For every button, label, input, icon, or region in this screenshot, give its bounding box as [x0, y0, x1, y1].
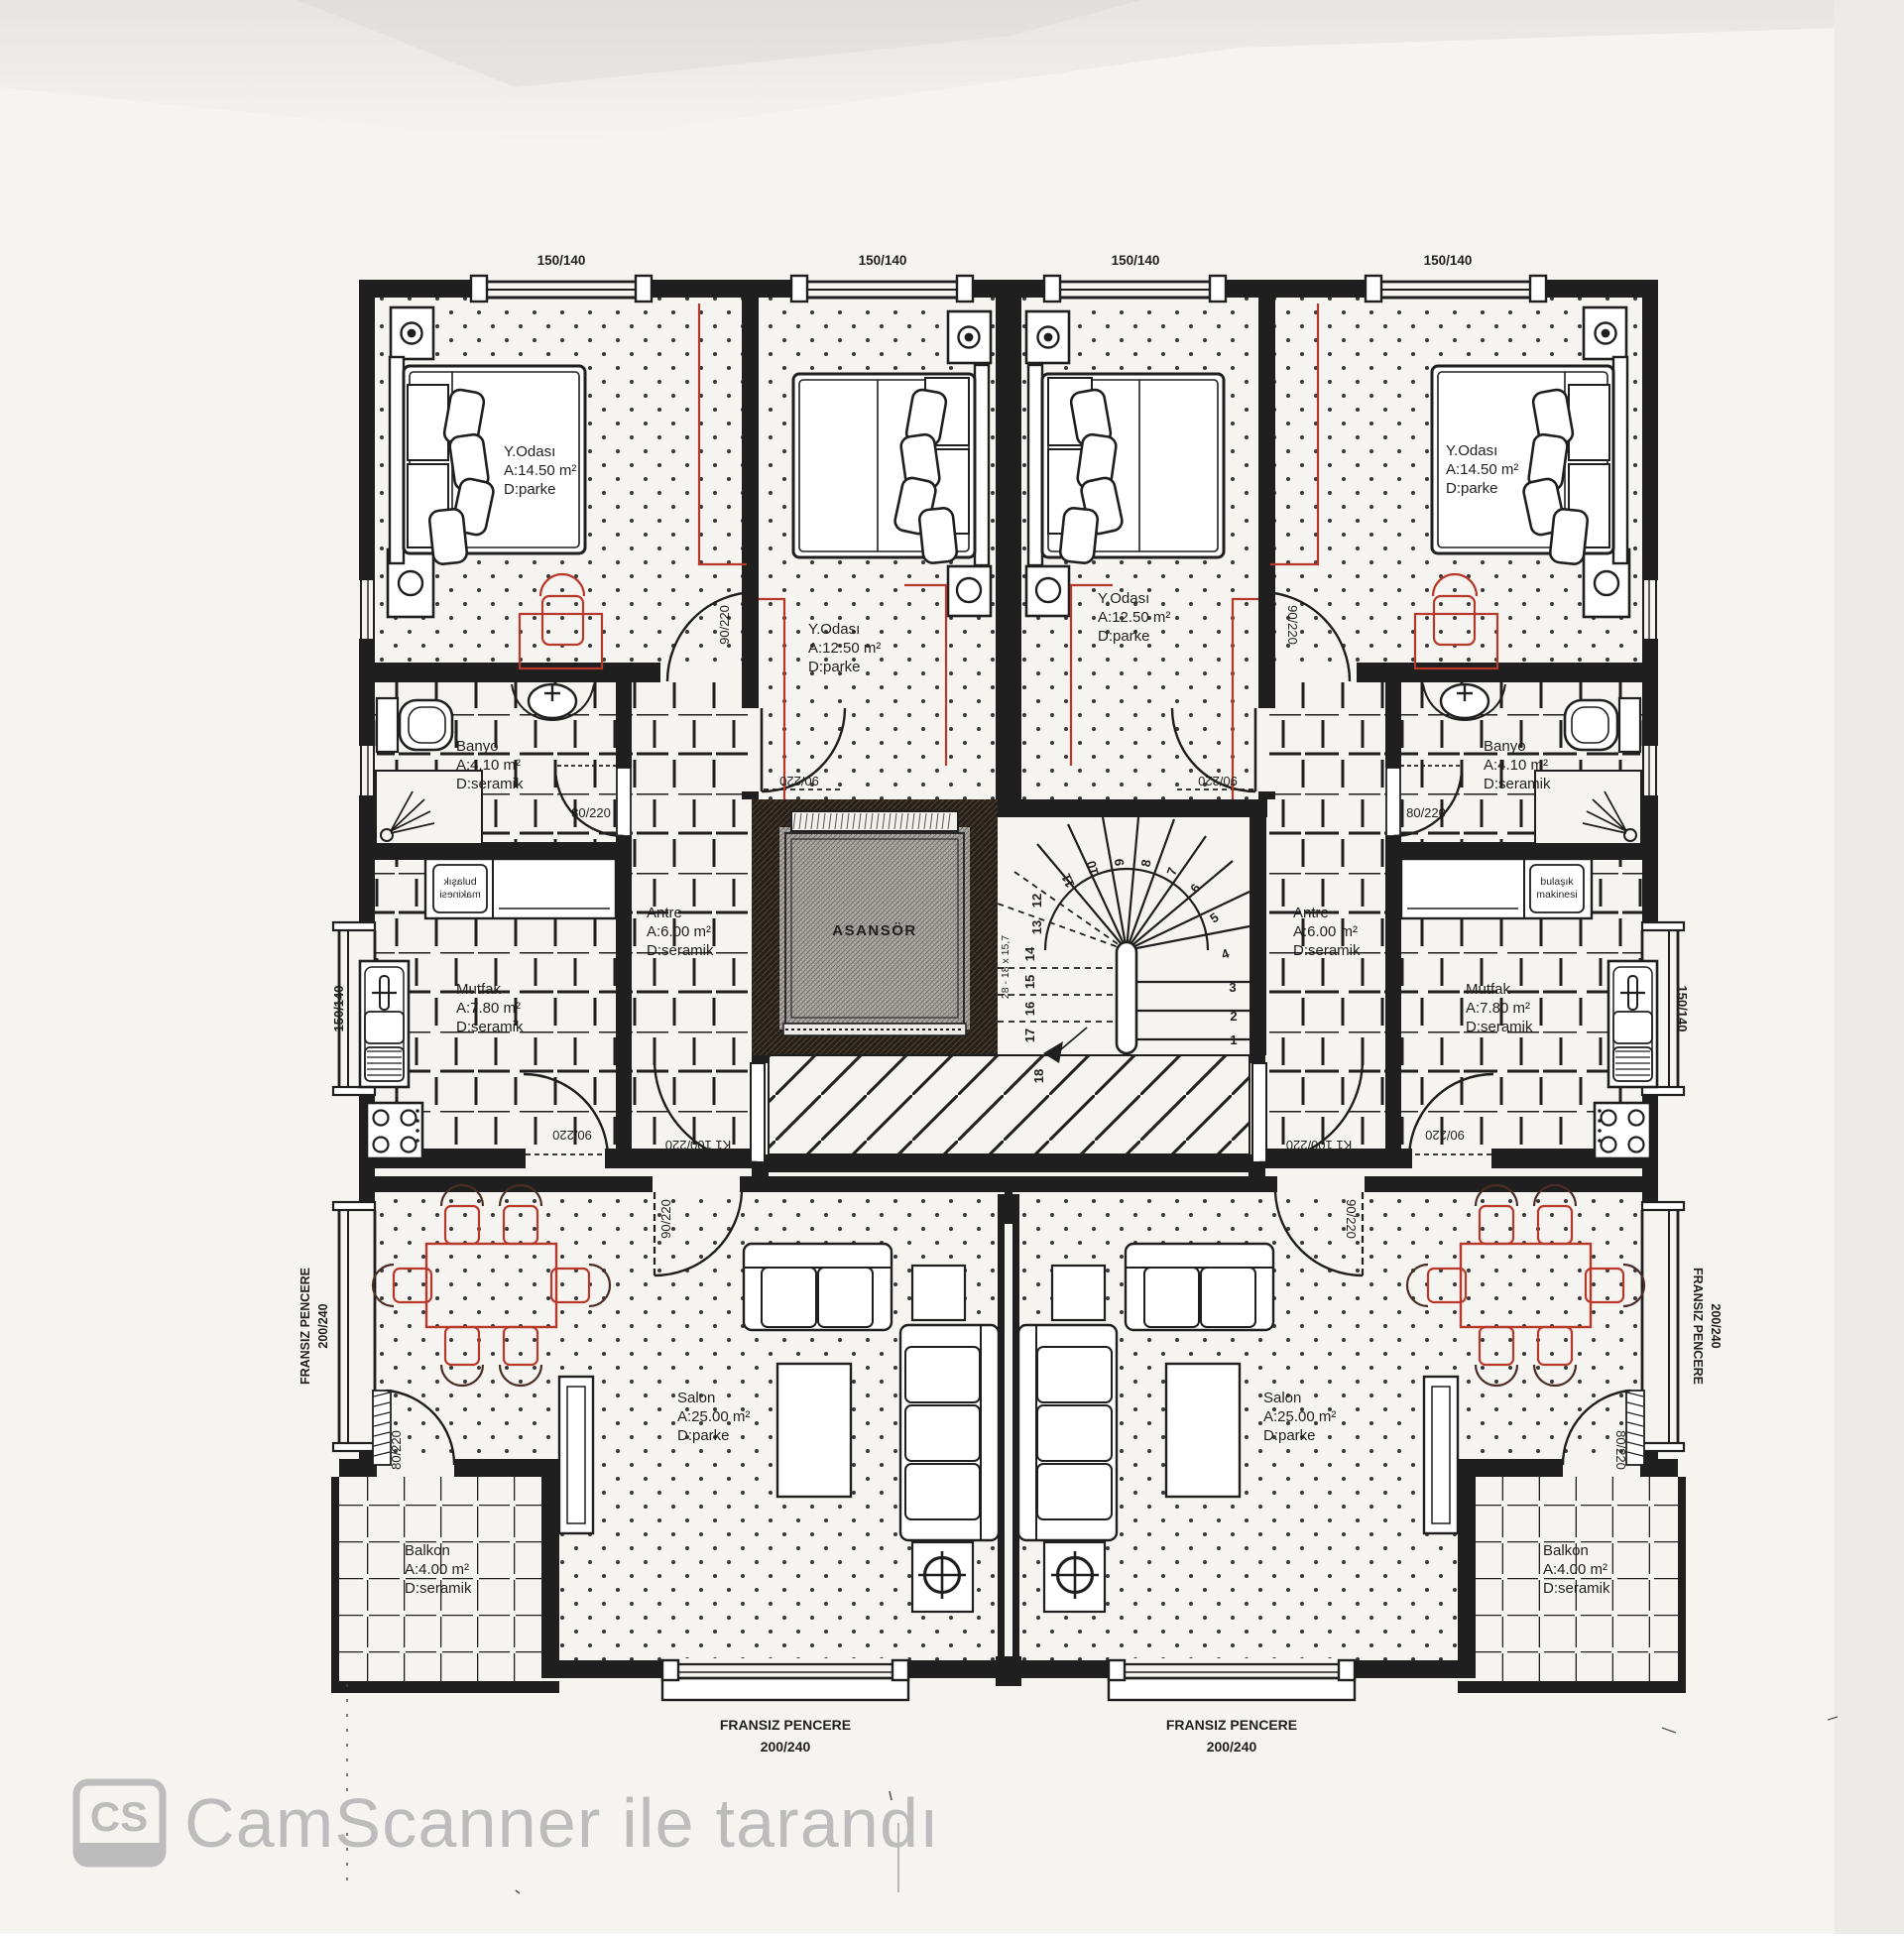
svg-text:80/220: 80/220: [1613, 1430, 1628, 1470]
svg-text:28 - 18 x 15,7: 28 - 18 x 15,7: [1000, 935, 1011, 999]
svg-text:200/240: 200/240: [1207, 1739, 1257, 1755]
svg-text:80/220: 80/220: [1406, 805, 1446, 820]
svg-text:Y.Odası: Y.Odası: [1098, 590, 1149, 607]
svg-text:A:6.00 m²: A:6.00 m²: [1293, 923, 1358, 940]
svg-text:16: 16: [1022, 1002, 1037, 1016]
svg-text:A:12.50 m²: A:12.50 m²: [1098, 609, 1170, 626]
svg-text:CS: CS: [90, 1793, 148, 1840]
svg-text:D:parke: D:parke: [504, 481, 556, 498]
svg-text:15: 15: [1022, 975, 1037, 989]
svg-text:A:6.00 m²: A:6.00 m²: [647, 923, 711, 940]
svg-text:Mutfak: Mutfak: [1466, 981, 1511, 998]
svg-text:A:4.00 m²: A:4.00 m²: [405, 1561, 469, 1578]
svg-text:90/220: 90/220: [658, 1199, 673, 1239]
svg-text:FRANSIZ PENCERE: FRANSIZ PENCERE: [1166, 1717, 1297, 1733]
svg-text:A:4.10 m²: A:4.10 m²: [1484, 757, 1548, 774]
svg-text:80/220: 80/220: [571, 805, 611, 820]
svg-text:D:seramik: D:seramik: [1293, 942, 1361, 959]
svg-text:D:seramik: D:seramik: [1543, 1580, 1610, 1597]
svg-text:90/220: 90/220: [779, 774, 819, 788]
svg-text:2: 2: [1230, 1009, 1237, 1024]
svg-text:A:4.00 m²: A:4.00 m²: [1543, 1561, 1607, 1578]
svg-text:D:parke: D:parke: [677, 1427, 730, 1444]
svg-text:90/220: 90/220: [1198, 774, 1238, 788]
svg-text:Banyo: Banyo: [456, 738, 499, 755]
svg-text:FRANSIZ PENCERE: FRANSIZ PENCERE: [1691, 1268, 1705, 1385]
svg-text:17: 17: [1022, 1029, 1037, 1042]
svg-text:150/140: 150/140: [1675, 986, 1690, 1032]
svg-text:D:seramik: D:seramik: [1466, 1019, 1533, 1035]
svg-text:150/140: 150/140: [859, 253, 907, 268]
svg-text:80/220: 80/220: [389, 1430, 404, 1470]
svg-text:FRANSIZ PENCERE: FRANSIZ PENCERE: [720, 1717, 851, 1733]
svg-text:bulaşık: bulaşık: [443, 876, 477, 888]
svg-text:Y.Odası: Y.Odası: [1446, 442, 1497, 459]
svg-text:18: 18: [1031, 1069, 1046, 1083]
svg-text:9: 9: [1112, 858, 1128, 867]
svg-text:3: 3: [1229, 980, 1236, 995]
svg-text:A:7.80 m²: A:7.80 m²: [1466, 1000, 1530, 1017]
svg-text:D:seramik: D:seramik: [405, 1580, 472, 1597]
svg-text:150/140: 150/140: [1424, 253, 1473, 268]
svg-text:200/240: 200/240: [1709, 1303, 1723, 1348]
svg-text:90/220: 90/220: [552, 1128, 592, 1143]
svg-text:90/220: 90/220: [717, 605, 732, 645]
svg-text:Y.Odası: Y.Odası: [504, 443, 555, 460]
svg-text:A:7.80 m²: A:7.80 m²: [456, 1000, 521, 1017]
svg-text:CamScanner ile tarandı: CamScanner ile tarandı: [184, 1784, 940, 1862]
svg-text:Mutfak: Mutfak: [456, 981, 502, 998]
svg-text:Salon: Salon: [1263, 1390, 1301, 1406]
svg-text:90/220: 90/220: [1285, 605, 1300, 645]
svg-text:A:12.50 m²: A:12.50 m²: [808, 640, 881, 657]
svg-text:D:seramik: D:seramik: [647, 942, 714, 959]
svg-text:Antre: Antre: [647, 905, 682, 921]
svg-text:Y.Odası: Y.Odası: [808, 621, 860, 638]
svg-text:K1 100/220: K1 100/220: [665, 1138, 732, 1152]
svg-text:150/140: 150/140: [1112, 253, 1160, 268]
svg-text:K1 100/220: K1 100/220: [1286, 1138, 1353, 1152]
svg-text:D:seramik: D:seramik: [456, 776, 524, 792]
svg-text:200/240: 200/240: [761, 1739, 811, 1755]
svg-text:150/140: 150/140: [331, 986, 346, 1032]
svg-text:1: 1: [1230, 1032, 1237, 1047]
svg-text:Balkon: Balkon: [1543, 1542, 1589, 1559]
svg-text:makinesi: makinesi: [439, 889, 480, 901]
svg-text:Banyo: Banyo: [1484, 738, 1526, 755]
svg-text:150/140: 150/140: [537, 253, 586, 268]
svg-text:Salon: Salon: [677, 1390, 715, 1406]
svg-text:D:parke: D:parke: [808, 659, 861, 675]
svg-text:A:14.50 m²: A:14.50 m²: [504, 462, 576, 479]
svg-text:90/220: 90/220: [1425, 1128, 1465, 1143]
svg-text:Antre: Antre: [1293, 905, 1329, 921]
svg-text:12: 12: [1029, 894, 1044, 908]
svg-text:D:seramik: D:seramik: [1484, 776, 1551, 792]
svg-text:ASANSÖR: ASANSÖR: [832, 922, 917, 939]
svg-text:A:14.50 m²: A:14.50 m²: [1446, 461, 1518, 478]
svg-text:D:parke: D:parke: [1446, 480, 1498, 497]
svg-text:14: 14: [1022, 946, 1037, 961]
svg-text:A:25.00 m²: A:25.00 m²: [1263, 1408, 1336, 1425]
svg-text:FRANSIZ PENCERE: FRANSIZ PENCERE: [298, 1268, 312, 1385]
svg-text:bulaşık: bulaşık: [1540, 876, 1574, 888]
svg-text:200/240: 200/240: [316, 1303, 330, 1348]
svg-text:13: 13: [1029, 920, 1044, 934]
svg-text:makinesi: makinesi: [1536, 889, 1577, 901]
svg-text:Balkon: Balkon: [405, 1542, 450, 1559]
svg-text:A:4.10 m²: A:4.10 m²: [456, 757, 521, 774]
svg-text:A:25.00 m²: A:25.00 m²: [677, 1408, 750, 1425]
svg-text:90/220: 90/220: [1344, 1199, 1359, 1239]
svg-text:D:parke: D:parke: [1263, 1427, 1316, 1444]
svg-text:D:seramik: D:seramik: [456, 1019, 524, 1035]
svg-text:D:parke: D:parke: [1098, 628, 1150, 645]
